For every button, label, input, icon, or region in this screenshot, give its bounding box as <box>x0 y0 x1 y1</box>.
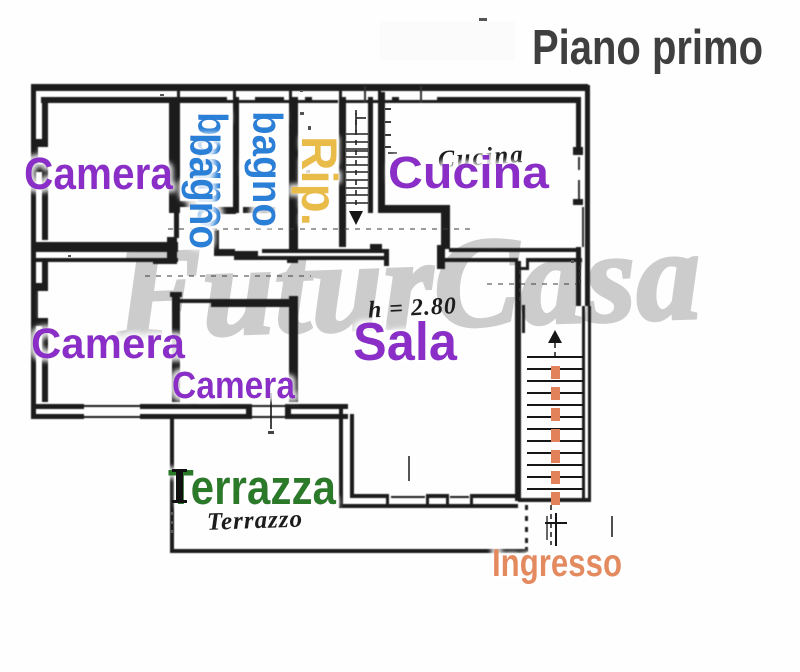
svg-text:Sala: Sala <box>353 312 458 372</box>
svg-text:Ingresso: Ingresso <box>492 542 622 585</box>
svg-text:Piano primo: Piano primo <box>532 21 763 75</box>
svg-text:Camera: Camera <box>24 148 174 199</box>
svg-text:Camera: Camera <box>31 320 186 368</box>
svg-text:Rip.: Rip. <box>291 136 347 226</box>
svg-text:Terrazza: Terrazza <box>168 461 337 515</box>
svg-text:Cucina: Cucina <box>388 147 550 198</box>
svg-text:bagno: bagno <box>181 133 228 249</box>
svg-text:bagno: bagno <box>244 111 291 227</box>
svg-text:Camera: Camera <box>172 365 296 407</box>
